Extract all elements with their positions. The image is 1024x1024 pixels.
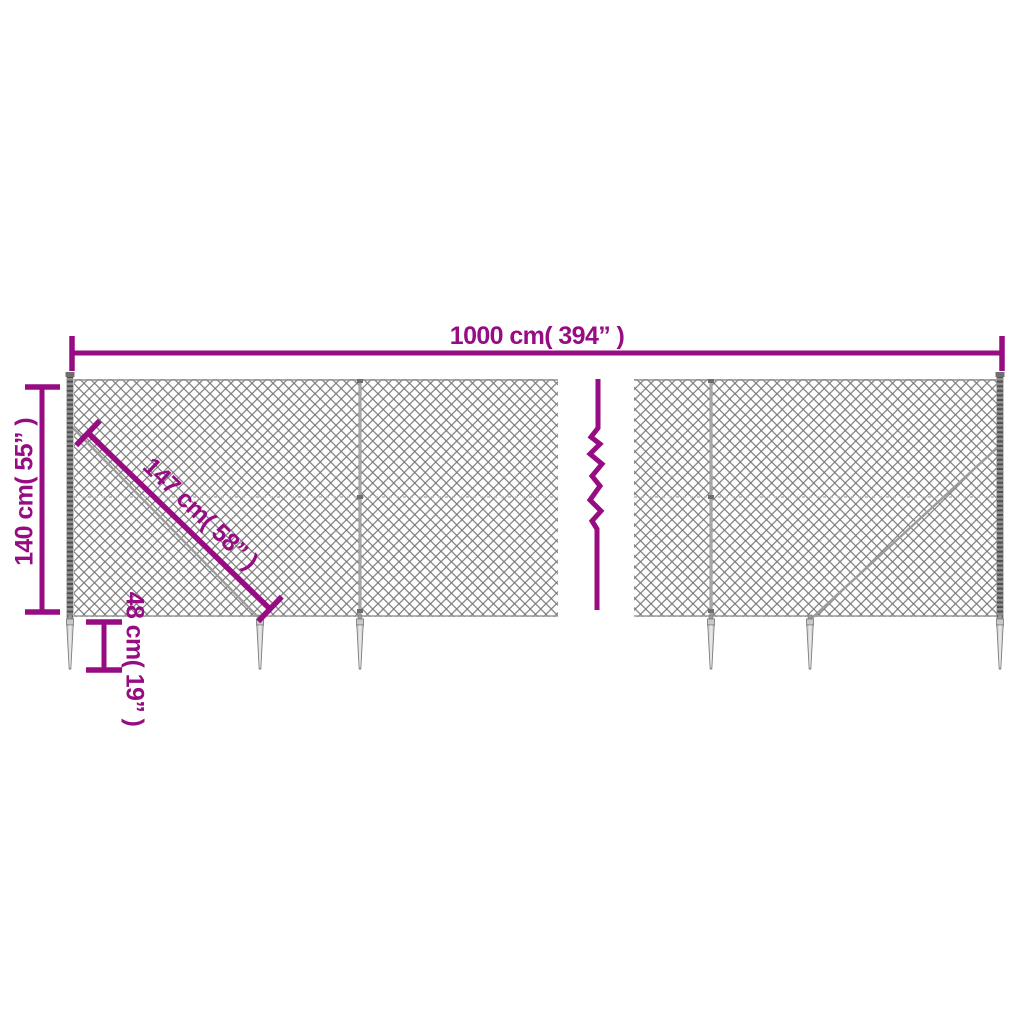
- width-dimension-label: 1000 cm( 394” ): [450, 324, 624, 349]
- chain-link-mesh-left: [74, 379, 558, 617]
- ground-spike: [996, 615, 1003, 669]
- fence-post-right-end: [996, 372, 1005, 620]
- ground-spike: [707, 615, 714, 669]
- spike-dimension-label: 48 cm( 19” ): [122, 592, 147, 727]
- height-dimension-label: 140 cm( 55” ): [13, 418, 38, 566]
- spike-dimension-line: [86, 622, 122, 670]
- ground-spike: [256, 615, 263, 669]
- ground-spike: [356, 615, 363, 669]
- fence-diagram-graphic: [0, 0, 1024, 1024]
- fence-dimension-diagram: 1000 cm( 394” ) 140 cm( 55” ) 147 cm( 58…: [0, 0, 1024, 1024]
- ground-spikes: [66, 615, 1003, 669]
- chain-link-mesh-right: [634, 379, 1002, 617]
- ground-spike: [66, 615, 73, 669]
- fence-post-left-end: [66, 372, 75, 620]
- length-break-zigzag: [590, 379, 602, 610]
- ground-spike: [806, 615, 813, 669]
